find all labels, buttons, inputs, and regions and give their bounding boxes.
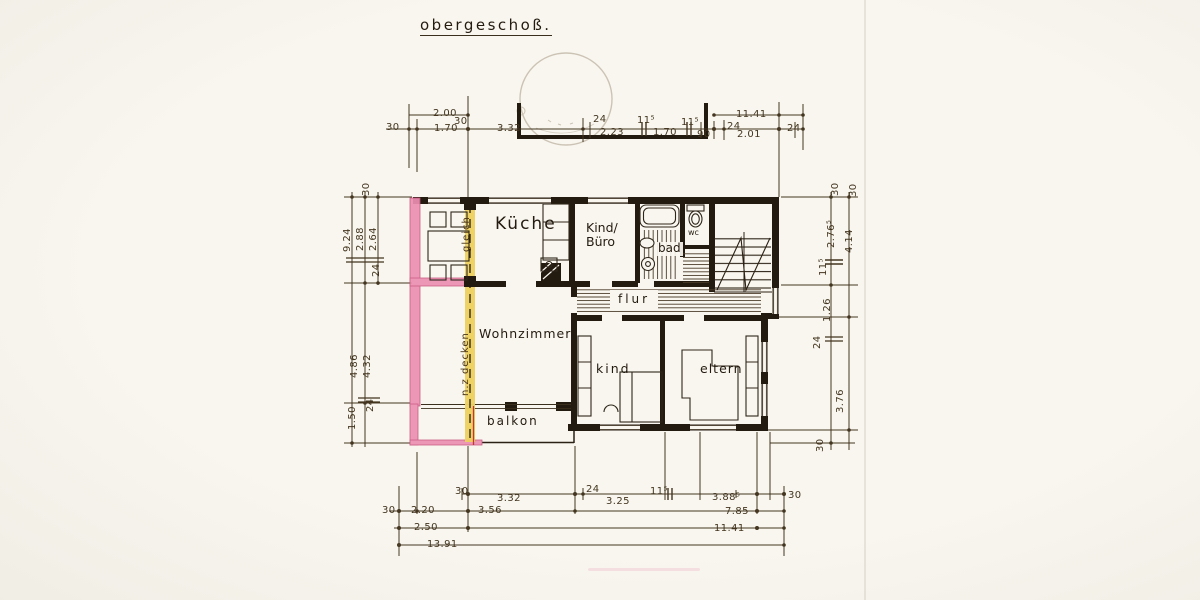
dim-label: 11⁵ xyxy=(637,116,655,126)
room-label-wohnzimmer: Wohnzimmer xyxy=(479,327,571,341)
dim-label: 30 xyxy=(849,183,859,197)
dim-label: 11.41 xyxy=(714,524,745,534)
dim-label: 30 xyxy=(386,123,400,133)
dim-label: 24 xyxy=(586,485,600,495)
dim-label: 2.20 xyxy=(411,506,435,516)
dim-label: 13.91 xyxy=(427,540,458,550)
dim-label: 24 xyxy=(787,124,801,134)
room-label-kueche: Küche xyxy=(495,215,557,235)
dim-label: 3.25 xyxy=(606,497,630,507)
dim-label: 11.41 xyxy=(736,110,767,120)
scanned-floor-plan-page: obergeschoß. Küche Kind/ Büro bad wc flu… xyxy=(0,0,1200,600)
balcony-outline xyxy=(482,431,574,443)
dim-label: 30 xyxy=(788,491,802,501)
dim-label: 1.26 xyxy=(823,298,833,322)
dim-label: 4.14 xyxy=(845,229,855,253)
room-label-kind-buero: Kind/ Büro xyxy=(586,221,618,250)
dim-label: 30 xyxy=(455,487,469,497)
annotation-gleich: gleich xyxy=(462,216,472,252)
dim-label: 90 xyxy=(697,130,711,140)
floor-plan-drawing xyxy=(0,0,1200,600)
dim-label: 3.32 xyxy=(497,494,521,504)
staircase xyxy=(714,232,772,292)
dim-label: 7.85 xyxy=(725,507,749,517)
dim-label: 3.76 xyxy=(836,389,846,413)
round-stamp-icon xyxy=(517,53,612,145)
dim-label: 11⁵ xyxy=(819,258,829,276)
dim-label: 2.76⁵ xyxy=(827,220,837,248)
dim-label: 24 xyxy=(372,263,382,277)
dim-label: 2.64 xyxy=(369,227,379,251)
dimension-lines xyxy=(344,96,858,556)
dim-label: 1.50 xyxy=(348,406,358,430)
room-label-eltern: eltern xyxy=(700,362,743,376)
dim-label: 3.56 xyxy=(478,506,502,516)
room-label-bad: bad xyxy=(656,242,683,256)
dimension-dots xyxy=(350,113,851,547)
dim-label: 4.86 xyxy=(350,354,360,378)
dim-label: 30 xyxy=(816,438,826,452)
annotation-nz-decken: n.z decken xyxy=(461,332,471,396)
dim-label: 3.88⁵ xyxy=(712,493,740,503)
dim-label: 3.32 xyxy=(497,124,521,134)
dim-label: 2.23 xyxy=(600,128,624,138)
dim-label: 11⁵ xyxy=(681,118,699,128)
dim-label: 1.70 xyxy=(653,128,677,138)
dim-label: 11⁵ xyxy=(650,487,668,497)
room-label-kind: kind xyxy=(596,362,631,376)
dim-label: 2.01 xyxy=(737,130,761,140)
dim-label: 24 xyxy=(366,398,376,412)
dim-label: 30 xyxy=(454,117,468,127)
dim-label: 24 xyxy=(593,115,607,125)
dim-label: 2.50 xyxy=(414,523,438,533)
dim-label: 4.32 xyxy=(363,354,373,378)
dim-label: 30 xyxy=(362,182,372,196)
dim-label: 9.24 xyxy=(343,228,353,252)
room-label-balkon: balkon xyxy=(487,415,539,429)
page-title: obergeschoß. xyxy=(420,16,552,36)
dim-label: 30 xyxy=(382,506,396,516)
dim-label: 2.88 xyxy=(356,227,366,251)
dim-label: 30 xyxy=(831,182,841,196)
room-label-wc: wc xyxy=(688,228,699,237)
room-label-flur: flur xyxy=(618,293,650,307)
dim-label: 24 xyxy=(813,335,823,349)
